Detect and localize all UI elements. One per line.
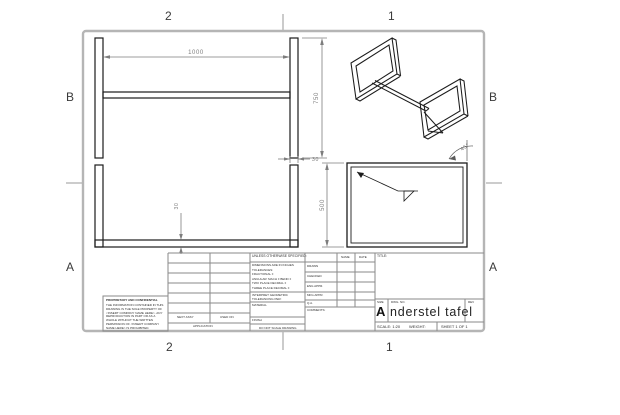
dim-miter-angle: 45°	[460, 142, 471, 152]
dim-front-width: 1000	[188, 50, 204, 56]
zone-label-right-b: B	[489, 91, 497, 103]
tolerance-line-1: DIMENSIONS ARE IN INCHES	[252, 264, 294, 267]
front-crossbar	[103, 92, 290, 98]
side-inner-frame	[351, 167, 463, 243]
dim-side-depth: 500	[320, 199, 326, 211]
dimensions	[103, 38, 344, 254]
rev-label: REV	[468, 301, 474, 304]
tolerance-line-3: FRACTIONAL ±	[252, 273, 273, 276]
top-left-rail	[95, 165, 103, 247]
date-header: DATE	[359, 256, 367, 259]
used-on-label: USED ON	[220, 316, 234, 319]
weight-label: WEIGHT:	[409, 325, 426, 330]
iso-left-frame-depth	[356, 38, 401, 101]
eng-appr-label: ENG APPR.	[307, 285, 323, 288]
qa-label: Q.A.	[307, 302, 313, 305]
angle-arrowhead	[449, 156, 456, 161]
dim-bar-width: 30	[174, 203, 180, 210]
zone-label-top-2: 2	[165, 10, 172, 22]
tolerance-line-5: TWO PLACE DECIMAL ±	[252, 282, 286, 285]
tolerance-line-6: THREE PLACE DECIMAL ±	[252, 287, 289, 290]
zone-label-bottom-2: 2	[166, 341, 173, 353]
isometric-view	[351, 38, 468, 139]
zone-label-bottom-1: 1	[386, 341, 393, 353]
front-right-leg	[290, 38, 298, 158]
sheet-value: SHEET 1 OF 1	[441, 325, 468, 330]
dwg-no-label: DWG. NO.	[391, 301, 405, 304]
iso-left-frame-inner	[356, 45, 393, 92]
next-assy-label: NEXT ASSY	[177, 316, 194, 319]
front-view	[95, 38, 298, 158]
zone-label-left-b: B	[66, 91, 74, 103]
top-right-rail	[290, 165, 298, 247]
iso-left-frame-outer	[351, 38, 397, 99]
material-label: MATERIAL	[252, 304, 267, 307]
mfg-appr-label: MFG APPR.	[307, 294, 323, 297]
proprietary-body: THE INFORMATION CONTAINED IN THIS DRAWIN…	[106, 304, 166, 330]
scale-value: SCALE: 1:20	[377, 325, 400, 330]
interpret-geometric: INTERPRET GEOMETRIC TOLERANCING PER:	[252, 294, 302, 302]
application-label: APPLICATION	[193, 325, 213, 328]
size-value: A	[376, 305, 385, 320]
title-label: TITLE:	[377, 255, 387, 259]
top-view	[95, 165, 298, 247]
fillet-weld-symbol	[357, 172, 418, 201]
drawn-label: DRAWN	[307, 265, 318, 268]
do-not-scale-label: DO NOT SCALE DRAWING	[259, 327, 297, 330]
drawing-sheet: 1000 750 30 30 500 45°	[0, 0, 620, 415]
comments-label: COMMENTS:	[307, 309, 325, 312]
dwg-no-value: nderstel tafel	[390, 305, 473, 319]
dim-leg-width: 30	[312, 157, 319, 163]
name-header: NAME	[341, 256, 350, 259]
zone-label-left-a: A	[66, 261, 74, 273]
zone-label-top-1: 1	[388, 10, 395, 22]
zone-label-right-a: A	[489, 261, 497, 273]
tolerance-header: UNLESS OTHERWISE SPECIFIED:	[252, 255, 307, 259]
finish-label: FINISH	[252, 319, 262, 322]
top-crossbar	[95, 240, 298, 247]
checked-label: CHECKED	[307, 275, 322, 278]
front-left-leg	[95, 38, 103, 158]
drawing-canvas: 1000 750 30 30 500 45°	[0, 0, 620, 415]
dim-front-height: 750	[314, 92, 320, 104]
